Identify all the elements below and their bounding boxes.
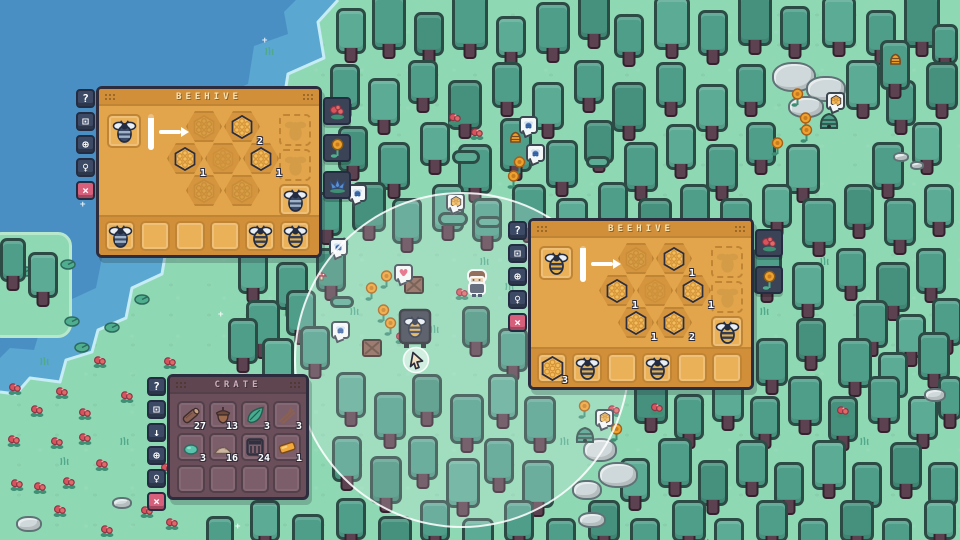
window-title[interactable]: BEEHIVE: [531, 221, 751, 238]
poppy-flower[interactable]: [33, 481, 47, 494]
tree[interactable]: [924, 500, 956, 540]
window-side-tabs: [323, 97, 351, 199]
honeycomb-icon: [540, 356, 565, 381]
honeycomb-icon: [230, 115, 254, 139]
crate-slot[interactable]: 24: [241, 433, 269, 461]
inventory-slot[interactable]: [210, 221, 240, 251]
poppy-flower[interactable]: [120, 390, 134, 403]
crate-slot[interactable]: 3: [273, 401, 301, 429]
tree[interactable]: [674, 394, 704, 440]
help-button[interactable]: ?: [508, 221, 527, 240]
rock[interactable]: [924, 388, 946, 402]
comb-slot[interactable]: 1: [599, 275, 635, 306]
pin-button[interactable]: ♀: [76, 158, 95, 177]
honeycomb-icon: [662, 247, 686, 271]
beehive-skep[interactable]: [818, 110, 840, 130]
tree[interactable]: [336, 498, 366, 540]
help-button[interactable]: ?: [147, 377, 166, 396]
production-progress-bar: [148, 114, 154, 150]
blue-flower-icon: [328, 178, 347, 193]
comb-count: 1: [708, 301, 714, 311]
drone-bee-slot[interactable]: [711, 316, 743, 348]
poppy-flower[interactable]: [163, 356, 177, 369]
grass-tuft: [60, 450, 69, 469]
tree[interactable]: [614, 14, 644, 58]
honeycomb-icon: [624, 247, 648, 271]
tree[interactable]: [658, 438, 692, 488]
poppy-flower[interactable]: [55, 386, 69, 399]
game-viewport: ++++++♥ ? ⊡ ⊕ ♀ × BEEHIVE 2 1 1: [0, 0, 960, 540]
item-count: 24: [258, 454, 270, 464]
speech-bubble-bee: [526, 144, 545, 162]
tree[interactable]: [736, 440, 768, 488]
comb-slot[interactable]: [186, 175, 222, 206]
item-count: 16: [226, 454, 238, 464]
tree[interactable]: [890, 442, 922, 490]
tree[interactable]: [788, 376, 822, 426]
tree[interactable]: [714, 518, 744, 540]
comb-slot-center[interactable]: [205, 143, 241, 174]
wild-hive[interactable]: [889, 52, 902, 66]
comb-slot[interactable]: 1: [167, 143, 203, 174]
comb-count: 1: [689, 269, 695, 279]
tree[interactable]: [368, 78, 400, 126]
poppy-flower[interactable]: [836, 405, 850, 418]
tree[interactable]: [756, 338, 788, 386]
poppy-flower[interactable]: [78, 432, 92, 445]
window-title[interactable]: BEEHIVE: [99, 89, 319, 106]
inventory-slot[interactable]: [712, 353, 742, 383]
grass-tuft: [120, 430, 129, 449]
speech-bubble-bee: [519, 116, 538, 134]
tree[interactable]: [786, 144, 820, 194]
marigold-flower[interactable]: [771, 137, 784, 157]
tree[interactable]: [578, 0, 610, 40]
comb-grid: 1 1 1 1 2: [597, 243, 713, 339]
comb-slot[interactable]: [618, 243, 654, 274]
poppy-flower[interactable]: [7, 434, 21, 447]
item-count: 3: [200, 454, 206, 464]
orange-flower-icon: [761, 270, 778, 291]
move-button[interactable]: ⊕: [508, 267, 527, 286]
tree[interactable]: [844, 184, 874, 230]
tab-orange-flower[interactable]: [323, 134, 351, 162]
honeycomb-icon: [605, 279, 629, 303]
comb-slot[interactable]: [224, 175, 260, 206]
window-title[interactable]: CRATE: [170, 377, 306, 394]
honeycomb-icon: [249, 147, 273, 171]
crate-slot[interactable]: 1: [273, 433, 301, 461]
bee-icon: [645, 356, 670, 381]
tree[interactable]: [630, 518, 660, 540]
window-buttons: ? ⊡ ⊕ ♀ ×: [76, 89, 95, 200]
poppy-flower[interactable]: [470, 127, 484, 140]
move-button[interactable]: ⊕: [76, 135, 95, 154]
bee-ghost-icon: [283, 153, 308, 178]
tree[interactable]: [840, 500, 874, 540]
drone-bee-slot[interactable]: [279, 184, 311, 216]
tree[interactable]: [918, 332, 950, 380]
speech-bubble-comb: [826, 92, 845, 110]
tree[interactable]: [228, 318, 258, 364]
tree[interactable]: [698, 460, 728, 506]
comb-count: 1: [632, 301, 638, 311]
crate-slot[interactable]: [177, 465, 205, 493]
tree[interactable]: [884, 198, 916, 246]
queen-bee-slot[interactable]: [107, 114, 141, 148]
sparkle-icon: +: [262, 36, 267, 46]
tab-orange-flower[interactable]: [755, 266, 783, 294]
tree[interactable]: [756, 500, 788, 540]
inventory-slot[interactable]: [105, 221, 135, 251]
tree[interactable]: [696, 84, 728, 132]
item-count: 13: [226, 422, 238, 432]
tree[interactable]: [452, 0, 488, 50]
tree[interactable]: [932, 24, 958, 64]
comb-count: 2: [257, 137, 263, 147]
rock[interactable]: [910, 161, 924, 170]
marigold-flower[interactable]: [791, 88, 804, 108]
bush[interactable]: [586, 156, 610, 168]
poppy-flower[interactable]: [93, 355, 107, 368]
tree[interactable]: [624, 142, 658, 192]
comb-grid: 2 1 1: [165, 111, 281, 207]
tree[interactable]: [792, 262, 824, 310]
rock[interactable]: [112, 497, 132, 509]
honeycomb-icon: [192, 179, 216, 203]
tab-red-flower[interactable]: [755, 229, 783, 257]
poppy-flower[interactable]: [78, 407, 92, 420]
poppy-flower[interactable]: [62, 476, 76, 489]
tree[interactable]: [846, 60, 880, 110]
drone-bee-slot[interactable]: [711, 246, 743, 278]
tree[interactable]: [206, 516, 234, 540]
tree[interactable]: [612, 82, 646, 132]
item-count: 3: [562, 376, 568, 386]
tree[interactable]: [378, 516, 412, 540]
close-button[interactable]: ×: [147, 492, 166, 511]
tree[interactable]: [822, 0, 856, 48]
inventory-slot[interactable]: 3: [537, 353, 567, 383]
red-flower-icon: [760, 235, 779, 252]
crate-window[interactable]: ? ⊡ ↓ ⊕ ♀ × CRATE 27 13 3 3 3 16 24 1: [167, 374, 309, 500]
crate-grid: 27 13 3 3 3 16 24 1: [170, 394, 306, 500]
comb-slot[interactable]: 2: [224, 111, 260, 142]
deposit-button[interactable]: ↓: [147, 423, 166, 442]
comb-slot[interactable]: 1: [656, 243, 692, 274]
drone-bee-slot[interactable]: [279, 114, 311, 146]
crate-slot[interactable]: [241, 465, 269, 493]
bee-ghost-icon: [715, 250, 740, 275]
tree[interactable]: [250, 500, 280, 540]
tree[interactable]: [372, 0, 406, 50]
crate-slot[interactable]: 16: [209, 433, 237, 461]
item-count: 3: [264, 422, 270, 432]
crate-slot[interactable]: 27: [177, 401, 205, 429]
lily-pad[interactable]: [64, 312, 80, 331]
resize-button[interactable]: ⊡: [76, 112, 95, 131]
window-side-tabs: [755, 229, 783, 294]
tree[interactable]: [666, 124, 696, 170]
drone-bee-slot[interactable]: [711, 281, 743, 313]
tree[interactable]: [736, 64, 766, 108]
poppy-flower[interactable]: [100, 524, 114, 537]
inventory-slot[interactable]: [642, 353, 672, 383]
gold-bar-icon: [276, 436, 298, 458]
tree[interactable]: [796, 318, 826, 362]
inventory-slot[interactable]: [140, 221, 170, 251]
grass-tuft: [40, 350, 49, 369]
hive-inventory-row: [99, 215, 319, 255]
crate-slot[interactable]: 3: [241, 401, 269, 429]
orange-flower-icon: [329, 138, 346, 159]
tree[interactable]: [812, 440, 846, 490]
rock[interactable]: [578, 512, 606, 528]
honeycomb-icon: [211, 147, 235, 171]
lily-pad[interactable]: [60, 255, 76, 274]
tree[interactable]: [546, 140, 578, 188]
bush[interactable]: [452, 150, 480, 164]
comb-count: 1: [200, 169, 206, 179]
poppy-flower[interactable]: [30, 404, 44, 417]
tree[interactable]: [420, 122, 450, 166]
queen-bee-slot[interactable]: [539, 246, 573, 280]
marigold-flower[interactable]: [507, 170, 520, 190]
honeycomb-icon: [192, 115, 216, 139]
tree[interactable]: [750, 396, 780, 440]
leaf-icon: [244, 404, 266, 426]
poppy-flower[interactable]: [165, 517, 179, 530]
inventory-slot[interactable]: [280, 221, 310, 251]
tree[interactable]: [780, 6, 810, 50]
item-count: 1: [296, 454, 302, 464]
resize-button[interactable]: ⊡: [147, 400, 166, 419]
crate-slot[interactable]: [273, 465, 301, 493]
rock[interactable]: [598, 462, 638, 488]
red-flower-icon: [328, 103, 347, 120]
help-button[interactable]: ?: [76, 89, 95, 108]
tree[interactable]: [698, 10, 728, 56]
comb-slot[interactable]: [186, 111, 222, 142]
item-count: 3: [296, 422, 302, 432]
tab-red-flower[interactable]: [323, 97, 351, 125]
tree[interactable]: [762, 184, 792, 228]
tree[interactable]: [868, 376, 900, 424]
drone-bee-slot[interactable]: [279, 149, 311, 181]
beehive-window-2[interactable]: ? ⊡ ⊕ ♀ × BEEHIVE 1 1 1 1 2: [528, 218, 754, 390]
sparkle-icon: +: [218, 310, 223, 320]
mouse-cursor: [402, 346, 430, 374]
lily-pad[interactable]: [74, 338, 90, 357]
poppy-flower[interactable]: [95, 458, 109, 471]
poppy-flower[interactable]: [448, 112, 462, 125]
tree[interactable]: [926, 62, 958, 110]
tree[interactable]: [838, 338, 872, 388]
tree[interactable]: [536, 2, 570, 54]
lily-pad[interactable]: [134, 290, 150, 309]
tree[interactable]: [574, 60, 604, 104]
poppy-flower[interactable]: [53, 504, 67, 517]
tree[interactable]: [496, 16, 526, 58]
bee-icon: [575, 356, 600, 381]
comb-slot[interactable]: 1: [675, 275, 711, 306]
tree[interactable]: [408, 60, 438, 104]
drone-slots: [711, 246, 743, 348]
tree[interactable]: [872, 142, 904, 190]
resize-button[interactable]: ⊡: [508, 244, 527, 263]
hive-inventory-row: 3: [531, 347, 751, 387]
bee-ghost-icon: [283, 118, 308, 143]
honeycomb-icon: [173, 147, 197, 171]
twigs-icon: [276, 404, 298, 426]
comb-slot-center[interactable]: [637, 275, 673, 306]
comb-count: 2: [689, 333, 695, 343]
bee-icon: [108, 224, 133, 249]
drone-slots: [279, 114, 311, 216]
crate-slot[interactable]: 3: [177, 433, 205, 461]
close-button[interactable]: ×: [508, 313, 527, 332]
honeycomb-icon: [230, 179, 254, 203]
wax-chunk-icon: [180, 436, 202, 458]
tree[interactable]: [546, 518, 576, 540]
tree[interactable]: [492, 62, 522, 108]
window-buttons: ? ⊡ ↓ ⊕ ♀ ×: [147, 377, 166, 511]
tree[interactable]: [706, 144, 738, 192]
tree[interactable]: [0, 238, 26, 282]
tree[interactable]: [908, 396, 938, 440]
marigold-flower[interactable]: [800, 124, 813, 144]
crate-slot[interactable]: [209, 465, 237, 493]
tree[interactable]: [28, 252, 58, 298]
bee-icon: [112, 119, 137, 144]
inventory-slot[interactable]: [607, 353, 637, 383]
close-button[interactable]: ×: [76, 181, 95, 200]
item-count: 27: [194, 422, 206, 432]
tree[interactable]: [798, 518, 828, 540]
poppy-flower[interactable]: [8, 382, 22, 395]
window-buttons: ? ⊡ ⊕ ♀ ×: [508, 221, 527, 332]
production-progress-bar: [580, 246, 586, 282]
comb-slot[interactable]: 1: [243, 143, 279, 174]
bee-icon: [283, 188, 308, 213]
honeycomb-icon: [624, 311, 648, 335]
rock[interactable]: [893, 152, 909, 162]
tree[interactable]: [912, 122, 942, 166]
honeycomb-icon: [643, 279, 667, 303]
sparkle-icon: +: [235, 522, 240, 532]
poppy-flower[interactable]: [10, 478, 24, 491]
move-button[interactable]: ⊕: [147, 446, 166, 465]
tree[interactable]: [292, 514, 324, 540]
poppy-flower[interactable]: [50, 436, 64, 449]
tree[interactable]: [336, 8, 366, 54]
comb-slot[interactable]: 2: [656, 307, 692, 338]
poppy-flower[interactable]: [650, 402, 664, 415]
tree[interactable]: [924, 184, 954, 228]
grass-tuft: [860, 430, 869, 449]
crate-slot[interactable]: 13: [209, 401, 237, 429]
rock[interactable]: [572, 480, 602, 500]
bee-icon: [248, 224, 273, 249]
tree[interactable]: [654, 0, 690, 50]
tree[interactable]: [916, 248, 946, 294]
bee-ghost-icon: [715, 285, 740, 310]
beehive-window-1[interactable]: ? ⊡ ⊕ ♀ × BEEHIVE 2 1 1: [96, 86, 322, 258]
bee-icon: [715, 320, 740, 345]
comb-count: 1: [651, 333, 657, 343]
inventory-slot[interactable]: [175, 221, 205, 251]
bee-icon: [544, 251, 569, 276]
tree[interactable]: [414, 12, 444, 56]
pin-button[interactable]: ♀: [508, 290, 527, 309]
honeycomb-icon: [662, 311, 686, 335]
honeycomb-icon: [681, 279, 705, 303]
inventory-slot[interactable]: [572, 353, 602, 383]
world-map: ++++++♥: [0, 0, 960, 540]
tree[interactable]: [738, 0, 772, 46]
sparkle-icon: +: [80, 200, 85, 210]
pin-button[interactable]: ♀: [147, 469, 166, 488]
comb-slot[interactable]: 1: [618, 307, 654, 338]
inventory-slot[interactable]: [677, 353, 707, 383]
tree[interactable]: [802, 198, 836, 248]
rock[interactable]: [16, 516, 42, 532]
tree[interactable]: [672, 500, 706, 540]
tree[interactable]: [882, 518, 912, 540]
tree[interactable]: [836, 248, 866, 292]
tab-blue-flower[interactable]: [323, 171, 351, 199]
tree[interactable]: [656, 62, 686, 108]
lily-pad[interactable]: [104, 318, 120, 337]
tree[interactable]: [828, 396, 858, 442]
comb-count: 1: [276, 169, 282, 179]
bee-icon: [283, 224, 308, 249]
inventory-slot[interactable]: [245, 221, 275, 251]
